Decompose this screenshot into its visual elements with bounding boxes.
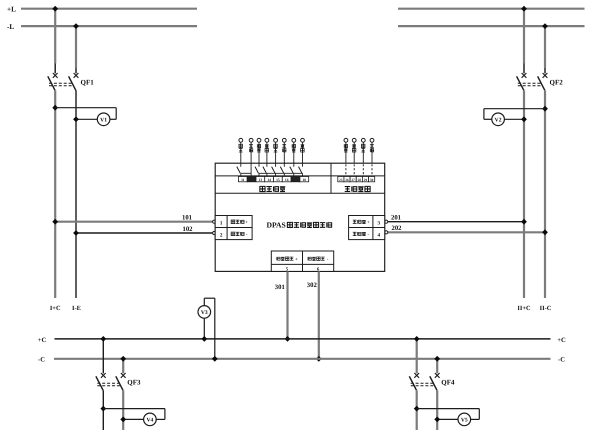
svg-text:14: 14 [267,178,271,182]
svg-text:16: 16 [285,178,289,182]
svg-text:3: 3 [378,220,381,226]
svg-text:18: 18 [302,178,306,182]
svg-text:V2: V2 [495,117,502,123]
svg-text:-C: -C [38,356,45,363]
svg-text:I+C: I+C [50,305,61,312]
svg-text:202: 202 [391,225,402,232]
svg-text:4: 4 [378,232,381,238]
svg-text:+L: +L [7,6,16,14]
svg-text:+C: +C [38,337,47,344]
svg-text:QF3: QF3 [127,379,141,387]
svg-text:11: 11 [241,178,245,182]
svg-text:I-E: I-E [72,305,81,312]
svg-text:25: 25 [339,178,343,182]
svg-text:DPAS: DPAS [267,220,286,229]
svg-text:+: + [367,220,370,225]
svg-text:102: 102 [182,226,193,233]
svg-text:29: 29 [364,178,368,182]
svg-text:V1: V1 [100,117,107,123]
svg-text:13: 13 [259,178,263,182]
svg-text:+: + [245,220,248,225]
svg-text:30: 30 [370,178,374,182]
svg-text:-L: -L [7,23,14,31]
svg-text:V5: V5 [461,417,468,423]
svg-text:II-C: II-C [540,305,552,312]
svg-text:15: 15 [276,178,280,182]
svg-text:V4: V4 [146,417,153,423]
svg-text:+C: +C [557,337,566,344]
svg-text:26: 26 [345,178,349,182]
svg-text:V3: V3 [201,310,208,316]
svg-text:QF1: QF1 [81,79,95,87]
svg-text:27: 27 [351,178,355,182]
svg-text:QF2: QF2 [550,79,564,87]
svg-text:1: 1 [220,220,223,226]
svg-text:302: 302 [307,282,318,289]
svg-text:301: 301 [275,284,285,291]
svg-text:101: 101 [182,214,192,221]
svg-text:2: 2 [220,232,223,238]
svg-text:QF4: QF4 [441,379,455,387]
svg-text:II+C: II+C [517,305,531,312]
svg-text:-C: -C [558,356,565,363]
svg-text:28: 28 [358,178,362,182]
svg-text:201: 201 [391,214,401,221]
